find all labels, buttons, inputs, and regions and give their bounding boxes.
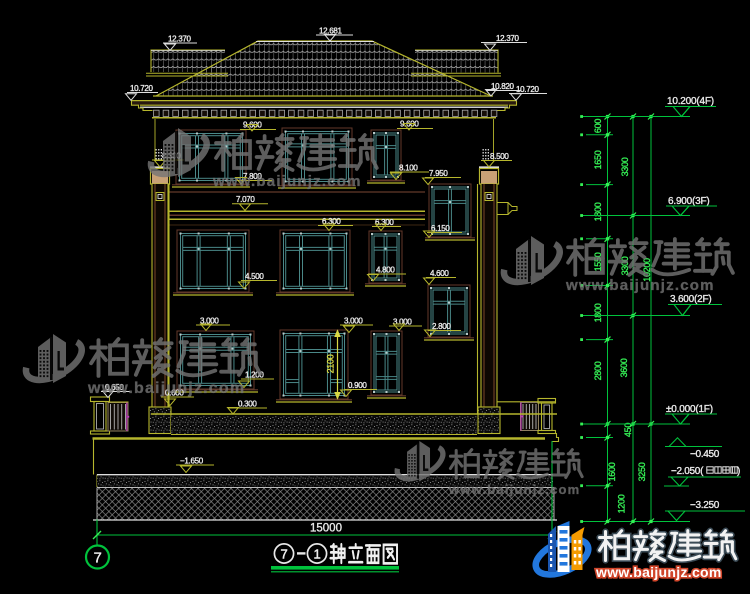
svg-text:3.000: 3.000: [344, 317, 363, 326]
svg-text:3.000: 3.000: [393, 318, 412, 327]
svg-text:4.600: 4.600: [430, 269, 449, 278]
svg-text:3600: 3600: [619, 358, 629, 377]
svg-text:1800: 1800: [593, 303, 603, 322]
svg-text:1650: 1650: [593, 150, 603, 169]
svg-text:7.070: 7.070: [236, 195, 255, 204]
svg-text:7: 7: [93, 550, 101, 567]
svg-text:10.720: 10.720: [130, 84, 154, 93]
svg-text:1800: 1800: [593, 202, 603, 221]
svg-text:www.baijunjz.com: www.baijunjz.com: [595, 564, 722, 580]
svg-text:6.900(3F): 6.900(3F): [668, 196, 710, 207]
svg-text:www.baijunjz.com: www.baijunjz.com: [565, 277, 715, 294]
svg-text:6.300: 6.300: [322, 217, 341, 226]
svg-text:12.370: 12.370: [496, 34, 520, 43]
svg-text:−3.250: −3.250: [690, 500, 720, 511]
svg-text:4.800: 4.800: [376, 266, 395, 275]
svg-text:2100: 2100: [326, 354, 336, 373]
svg-text:www.baijunjz.com: www.baijunjz.com: [448, 482, 580, 497]
svg-text:0.900: 0.900: [348, 381, 367, 390]
svg-text:3300: 3300: [620, 157, 630, 176]
svg-text:±0.000(1F): ±0.000(1F): [666, 404, 713, 415]
svg-text:1200: 1200: [617, 494, 627, 513]
svg-text:15000: 15000: [310, 523, 342, 535]
svg-text:7.950: 7.950: [429, 169, 448, 178]
svg-text:3250: 3250: [637, 462, 647, 481]
svg-text:3300: 3300: [620, 256, 630, 275]
svg-text:10.720: 10.720: [516, 85, 540, 94]
svg-text:600: 600: [593, 119, 603, 133]
svg-text:3.600(2F): 3.600(2F): [670, 294, 712, 305]
svg-text:10.200(4F): 10.200(4F): [667, 96, 714, 107]
svg-text:2800: 2800: [593, 361, 603, 380]
svg-text:www.baijunjz.com: www.baijunjz.com: [87, 380, 245, 397]
svg-text:12.370: 12.370: [168, 35, 192, 44]
svg-text:7: 7: [281, 547, 288, 562]
svg-text:): ): [737, 466, 740, 477]
svg-text:−0.450: −0.450: [690, 449, 720, 460]
svg-text:1: 1: [314, 547, 321, 562]
svg-text:−2.050(: −2.050(: [671, 466, 704, 477]
svg-text:8.500: 8.500: [490, 152, 509, 161]
svg-text:0.300: 0.300: [238, 400, 257, 409]
svg-text:1600: 1600: [607, 462, 617, 481]
svg-text:450: 450: [623, 423, 633, 437]
svg-text:−1.650: −1.650: [180, 457, 204, 466]
svg-text:8.100: 8.100: [399, 164, 418, 173]
svg-text:www.baijunjz.com: www.baijunjz.com: [212, 173, 362, 190]
svg-text:4.500: 4.500: [245, 272, 264, 281]
